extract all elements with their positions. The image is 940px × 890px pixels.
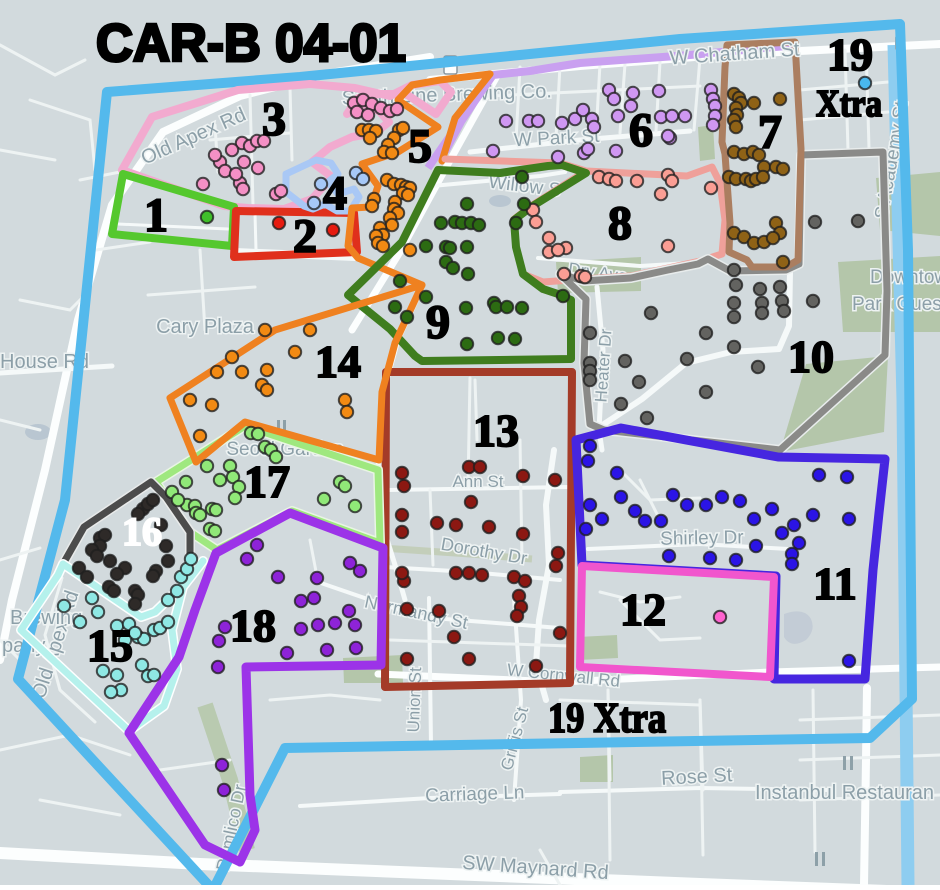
svg-text:Xtra: Xtra [816, 83, 882, 125]
svg-text:Union St: Union St [404, 667, 425, 733]
svg-text:Shirley Dr: Shirley Dr [660, 527, 744, 549]
svg-text:6: 6 [629, 104, 653, 157]
svg-text:10: 10 [788, 331, 834, 382]
svg-text:Ann St: Ann St [452, 472, 503, 491]
svg-text:2: 2 [293, 210, 317, 263]
svg-text:4: 4 [323, 167, 347, 220]
svg-text:14: 14 [315, 336, 361, 387]
svg-text:CAR-B 04-01: CAR-B 04-01 [96, 14, 406, 73]
svg-text:Park Gues: Park Gues [852, 294, 940, 315]
svg-text:3: 3 [262, 93, 286, 146]
svg-text:Cary Plaza: Cary Plaza [156, 316, 255, 338]
svg-text:13: 13 [473, 405, 519, 456]
svg-text:15: 15 [87, 620, 133, 671]
svg-text:11: 11 [813, 558, 856, 609]
svg-text:Carriage Ln: Carriage Ln [425, 782, 525, 806]
svg-text:12: 12 [620, 584, 666, 635]
svg-text:9: 9 [426, 296, 450, 349]
svg-text:7: 7 [758, 106, 782, 159]
svg-text:16: 16 [122, 509, 162, 554]
svg-text:18: 18 [230, 600, 276, 651]
svg-text:17: 17 [244, 456, 290, 507]
svg-text:19 Xtra: 19 Xtra [548, 696, 666, 742]
svg-text:Rose St: Rose St [661, 764, 734, 790]
svg-text:8: 8 [608, 197, 632, 250]
svg-text:5: 5 [408, 120, 432, 173]
svg-text:Instanbul Restauran: Instanbul Restauran [755, 782, 934, 804]
svg-text:19: 19 [827, 29, 873, 80]
svg-text:1: 1 [144, 189, 168, 242]
